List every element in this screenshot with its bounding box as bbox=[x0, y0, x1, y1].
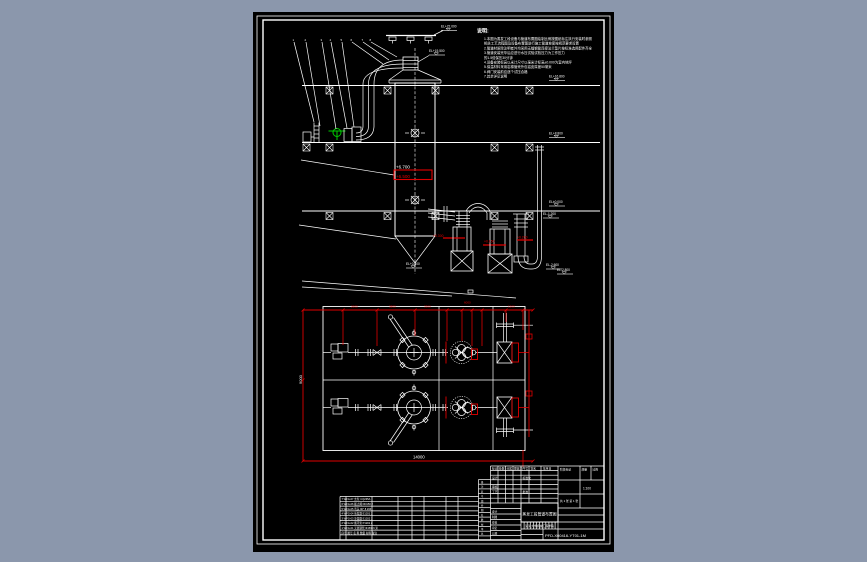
svg-text:审核: 审核 bbox=[492, 485, 498, 489]
plan-view-white bbox=[323, 307, 533, 451]
svg-text:单: 单 bbox=[481, 527, 484, 531]
svg-text:相关工艺流程图及设备布置图进行施工管道坡度按规范要求设置: 相关工艺流程图及设备布置图进行施工管道坡度按规范要求设置 bbox=[484, 41, 580, 46]
svg-text:标准化: 标准化 bbox=[523, 476, 532, 480]
svg-text:注: 注 bbox=[481, 485, 484, 489]
svg-text:EL+16.800: EL+16.800 bbox=[549, 75, 565, 79]
svg-text:3.管道安装完毕后应进行水压试验试验压力为工作压力: 3.管道安装完毕后应进行水压试验试验压力为工作压力 bbox=[484, 50, 565, 55]
svg-text:总: 总 bbox=[481, 532, 484, 536]
svg-text:1 WFG-01 无缝钢管 Φ159×6 米: 1 WFG-01 无缝钢管 Φ159×6 米 bbox=[342, 526, 379, 530]
svg-text:分区: 分区 bbox=[507, 467, 513, 471]
svg-text:工艺: 工艺 bbox=[492, 490, 498, 494]
vapor-pipes-left bbox=[356, 60, 403, 140]
svg-text:5: 5 bbox=[341, 38, 343, 42]
svg-text:7: 7 bbox=[362, 38, 364, 42]
svg-text:更改文件号: 更改文件号 bbox=[514, 467, 528, 471]
svg-text:+0.300: +0.300 bbox=[433, 234, 444, 238]
svg-text:共 1 张 第 1 张: 共 1 张 第 1 张 bbox=[560, 499, 578, 503]
svg-text:年月日: 年月日 bbox=[543, 467, 552, 471]
svg-text:EL+19.500: EL+19.500 bbox=[429, 49, 445, 53]
svg-text:EL+8.800: EL+8.800 bbox=[549, 132, 563, 136]
svg-text:设计: 设计 bbox=[492, 476, 498, 480]
svg-text:6.阀门安装前应逐个试压合格: 6.阀门安装前应逐个试压合格 bbox=[484, 69, 528, 74]
svg-text:5.保温材料采用岩棉管壳外包铝皮厚度50毫米: 5.保温材料采用岩棉管壳外包铝皮厚度50毫米 bbox=[484, 64, 552, 69]
svg-text:备: 备 bbox=[481, 480, 484, 484]
svg-text:5 WFG-05 弯头 90° 8 20#: 5 WFG-05 弯头 90° 8 20# bbox=[342, 507, 372, 511]
svg-text:EL±0.000: EL±0.000 bbox=[549, 200, 563, 204]
svg-text:1: 1 bbox=[293, 38, 295, 42]
svg-text:组: 组 bbox=[481, 499, 484, 503]
svg-text:3800: 3800 bbox=[389, 305, 396, 309]
svg-text:1500: 1500 bbox=[508, 305, 515, 309]
svg-text:EL-2.600: EL-2.600 bbox=[546, 263, 559, 267]
svg-text:1.本图为蒸发工段设备与管道布置图绘制比例按图纸标注执行安装: 1.本图为蒸发工段设备与管道布置图绘制比例按图纸标注执行安装时参照 bbox=[484, 36, 593, 41]
svg-text:比例: 比例 bbox=[593, 468, 599, 472]
svg-text:设计: 设计 bbox=[492, 510, 498, 514]
svg-text:1:100: 1:100 bbox=[583, 487, 591, 491]
svg-text:标记: 标记 bbox=[492, 467, 498, 471]
svg-text:3: 3 bbox=[321, 38, 323, 42]
svg-text:9000: 9000 bbox=[298, 374, 303, 384]
tower: +6.700+6.500 bbox=[299, 31, 443, 275]
callout-leaders: 12345678 bbox=[293, 38, 398, 129]
svg-text:4 WFG-04 蒸发器 E1201 1: 4 WFG-04 蒸发器 E1201 1 bbox=[342, 512, 373, 516]
svg-text:3 WFG-03 冷凝器 E1202 1: 3 WFG-03 冷凝器 E1202 1 bbox=[342, 516, 373, 520]
svg-text:区: 区 bbox=[481, 489, 484, 493]
svg-text:+0.150: +0.150 bbox=[484, 240, 495, 244]
svg-text:签名: 签名 bbox=[531, 467, 537, 471]
sheet-frame bbox=[257, 16, 610, 544]
svg-text:6: 6 bbox=[351, 38, 353, 42]
notes-block: 说明:1.本图为蒸发工段设备与管道布置图绘制比例按图纸标注执行安装时参照相关工艺… bbox=[477, 28, 593, 79]
parts-table: 7 WFG-07 支架 4 Q235A6 WFG-06 截止阀 DN150 25… bbox=[340, 480, 491, 541]
svg-text:EL+22.000: EL+22.000 bbox=[441, 25, 457, 29]
svg-text:2600: 2600 bbox=[351, 305, 358, 309]
svg-text:+6.700: +6.700 bbox=[396, 165, 410, 170]
svg-text:3300: 3300 bbox=[424, 305, 431, 309]
svg-text:8: 8 bbox=[370, 38, 372, 42]
svg-text:14000: 14000 bbox=[413, 455, 425, 460]
svg-text:制图: 制图 bbox=[492, 515, 498, 519]
svg-text:名: 名 bbox=[481, 513, 484, 517]
svg-text:批准: 批准 bbox=[523, 490, 529, 494]
svg-text:数: 数 bbox=[481, 518, 484, 522]
svg-text:材: 材 bbox=[481, 522, 484, 526]
svg-text:7.其余详见说明: 7.其余详见说明 bbox=[484, 74, 508, 79]
svg-text:EL-2.800: EL-2.800 bbox=[557, 268, 570, 272]
svg-text:+6.500: +6.500 bbox=[396, 174, 410, 179]
svg-text:PFD-X00416-YT01-1M: PFD-X00416-YT01-1M bbox=[545, 533, 586, 538]
drawing-sheet[interactable]: EL+16.800EL+8.800EL±0.000EL+22.000EL+19.… bbox=[253, 12, 614, 552]
svg-text:阶段标记: 阶段标记 bbox=[560, 468, 571, 472]
floor2-equipment bbox=[303, 123, 361, 143]
svg-text:图: 图 bbox=[481, 508, 484, 512]
svg-text:4: 4 bbox=[330, 38, 332, 42]
svg-text:件: 件 bbox=[481, 504, 484, 508]
svg-text:4.设备安装标高以米计尺寸以毫米计标高±0.000为室内地坪: 4.设备安装标高以米计尺寸以毫米计标高±0.000为室内地坪 bbox=[484, 60, 572, 65]
svg-text:2: 2 bbox=[305, 38, 307, 42]
svg-text:的1.5倍保压30分钟: 的1.5倍保压30分钟 bbox=[484, 55, 513, 60]
svg-text:日期: 日期 bbox=[492, 531, 498, 535]
svg-text:序号 图号 名 称 数量 材料 备注: 序号 图号 名 称 数量 材料 备注 bbox=[342, 531, 378, 535]
svg-text:2 WFG-02 循环泵 P1201 2: 2 WFG-02 循环泵 P1201 2 bbox=[342, 521, 373, 525]
svg-text:6000: 6000 bbox=[464, 301, 471, 305]
svg-text:EL-1.200: EL-1.200 bbox=[543, 212, 556, 216]
svg-text:处数: 处数 bbox=[499, 467, 505, 471]
title-block: 标记处数分区更改文件号签名年月日设计标准化审核工艺批准阶段标记质量比例1:100… bbox=[491, 466, 605, 540]
svg-text:审定: 审定 bbox=[492, 526, 498, 530]
svg-text:说明:: 说明: bbox=[477, 28, 489, 35]
svg-text:+0.200: +0.200 bbox=[517, 236, 528, 240]
svg-text:蒸发工段管道布置图: 蒸发工段管道布置图 bbox=[522, 512, 556, 517]
svg-text:7 WFG-07 支架 4 Q235A: 7 WFG-07 支架 4 Q235A bbox=[342, 497, 371, 501]
svg-text:校核: 校核 bbox=[492, 521, 498, 525]
svg-text:6 WFG-06 截止阀 DN150 2: 6 WFG-06 截止阀 DN150 2 bbox=[342, 502, 374, 506]
svg-text:质量: 质量 bbox=[582, 468, 588, 472]
svg-text:某某大学机械工程学院: 某某大学机械工程学院 bbox=[525, 523, 554, 528]
svg-text:号: 号 bbox=[481, 494, 484, 498]
drawing-svg: EL+16.800EL+8.800EL±0.000EL+22.000EL+19.… bbox=[253, 12, 614, 552]
plan-view-dimensions-red: 26003800330060001500140009000 bbox=[298, 301, 535, 468]
svg-text:2.管道材质除注明者外均采用无缝钢管连接法兰垫片按标准选用配: 2.管道材质除注明者外均采用无缝钢管连接法兰垫片按标准选用配件齐全 bbox=[484, 45, 593, 50]
cad-viewport[interactable]: EL+16.800EL+8.800EL±0.000EL+22.000EL+19.… bbox=[0, 0, 867, 562]
svg-text:EL+0.800: EL+0.800 bbox=[406, 262, 420, 266]
bottom-vessels: +0.300+0.150+0.200 bbox=[302, 145, 544, 298]
